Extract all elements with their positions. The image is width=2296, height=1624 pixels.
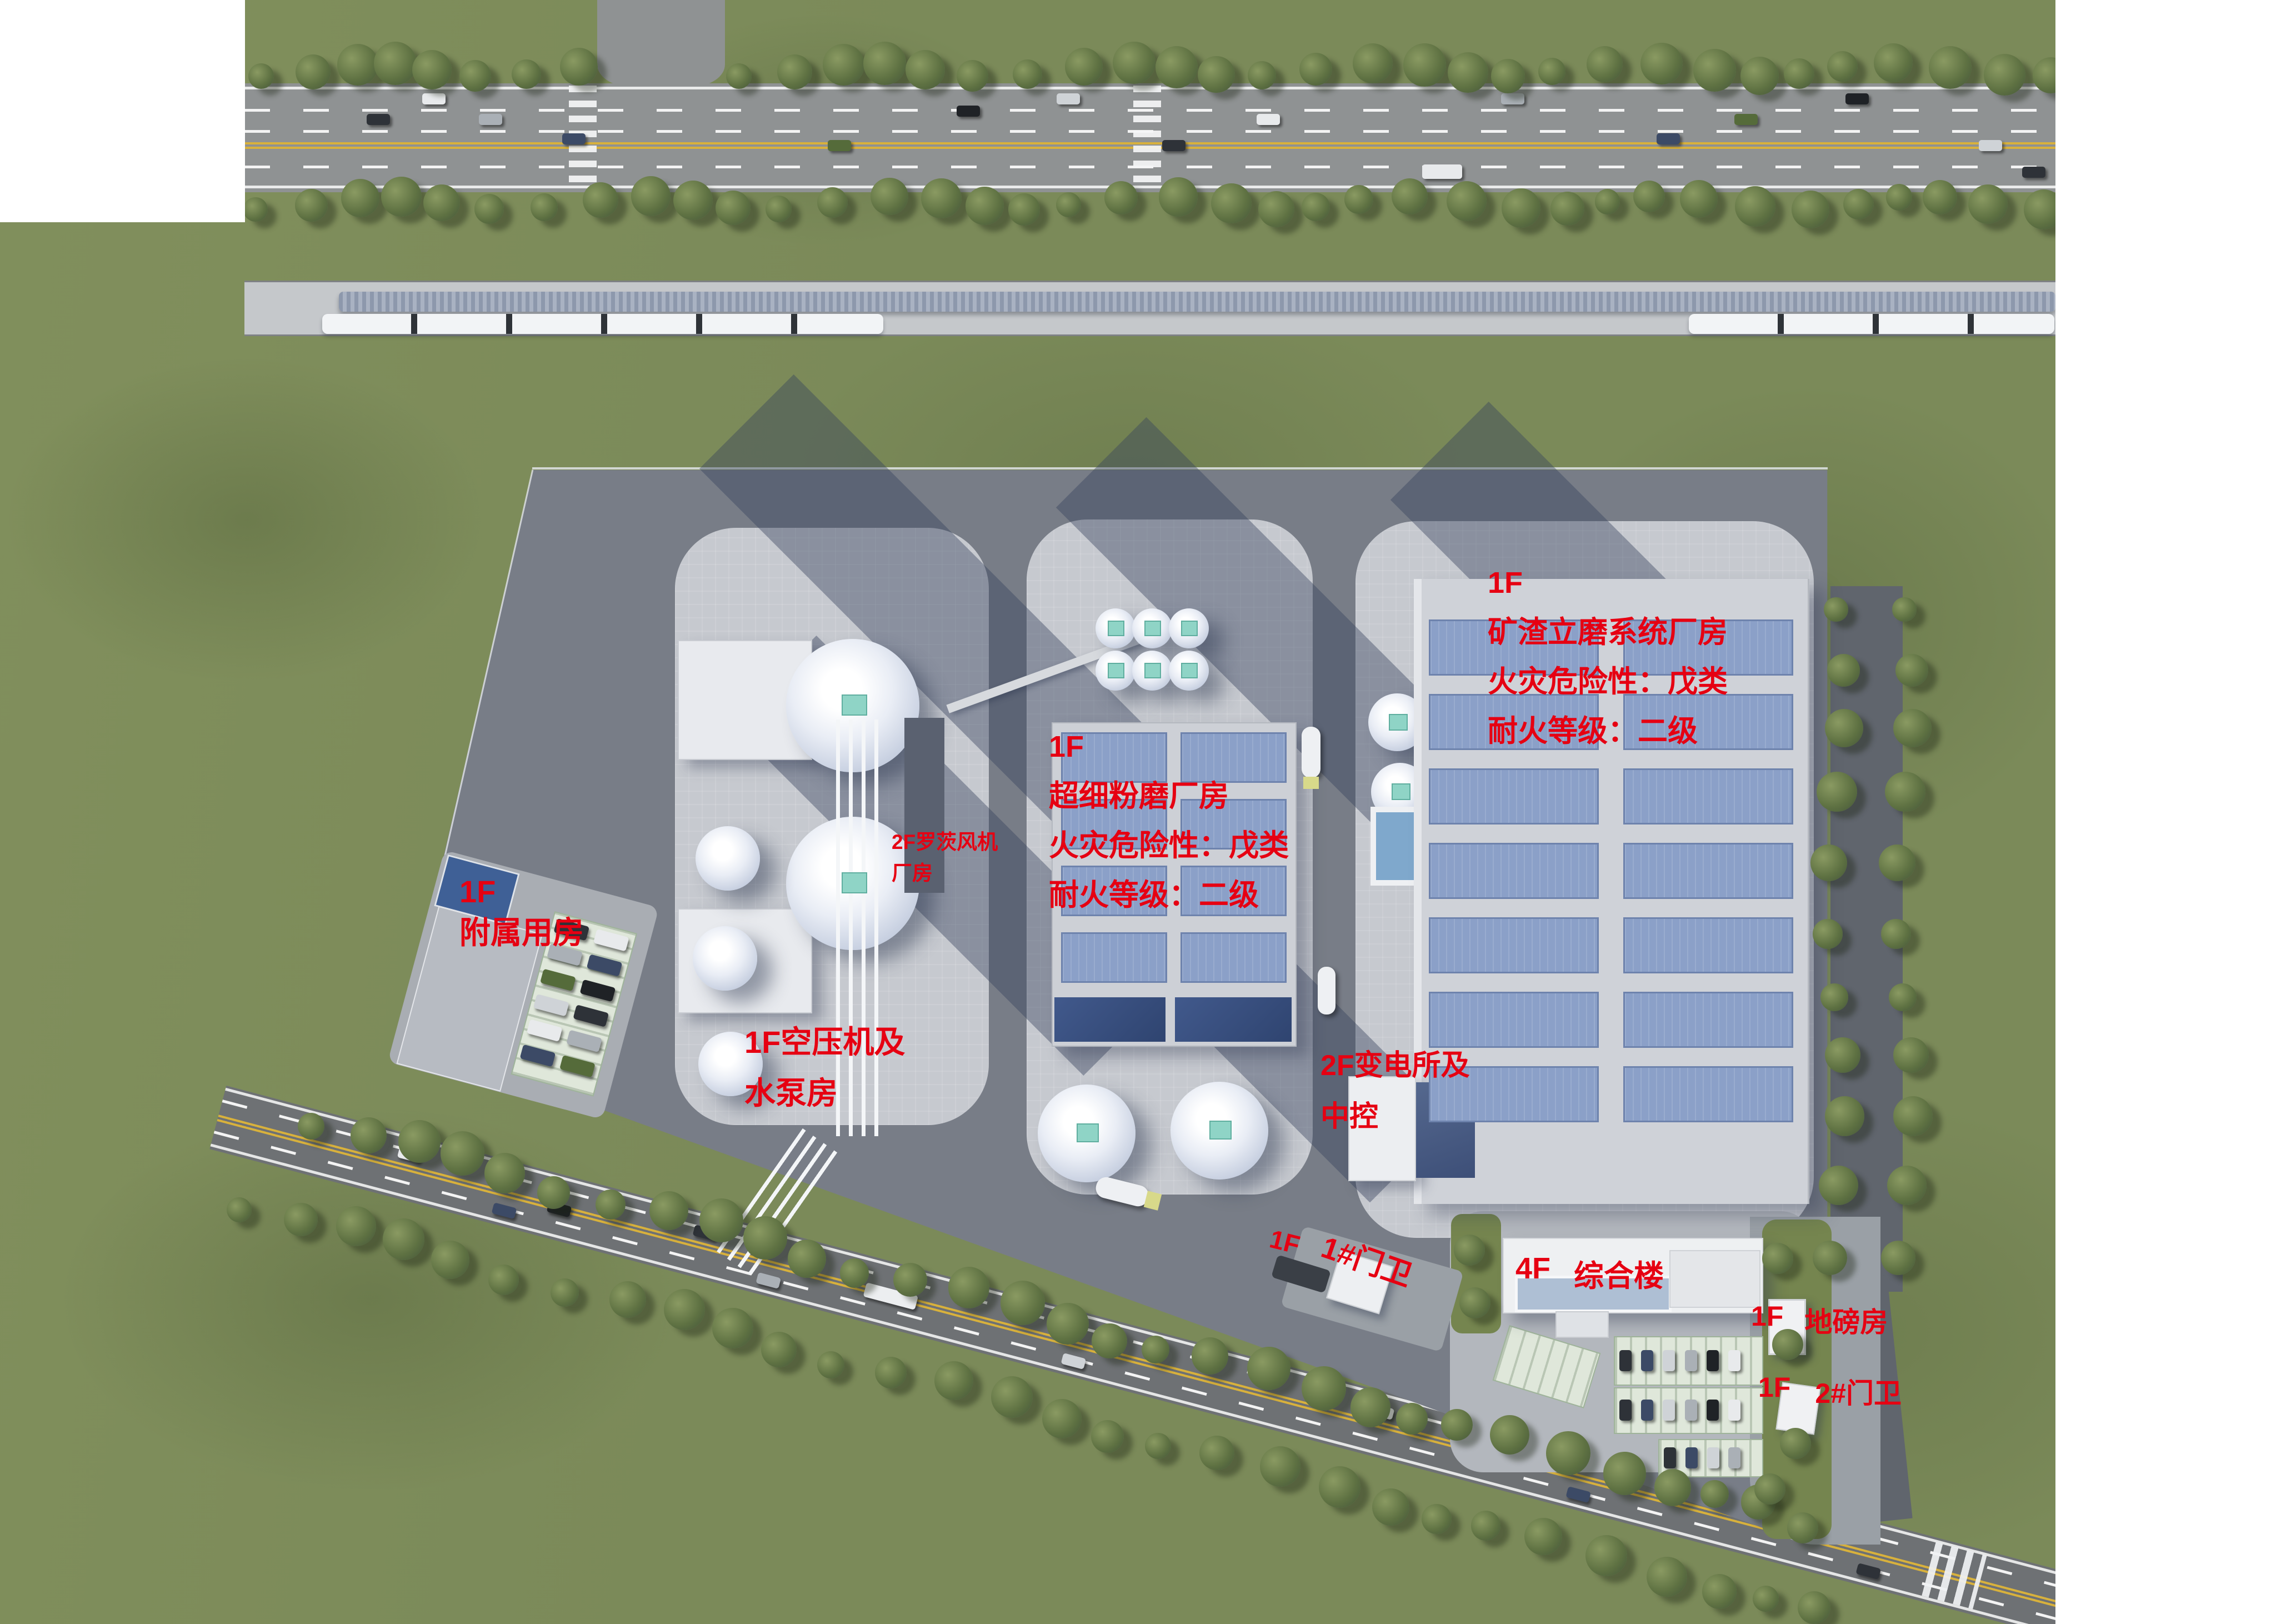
- tree: [1091, 1420, 1124, 1453]
- parked-car: [1707, 1350, 1719, 1371]
- parked-car: [1663, 1350, 1675, 1371]
- label-roots-blower: 2F罗茨风机 厂房: [892, 827, 998, 889]
- tree: [1524, 1518, 1562, 1555]
- tree: [1396, 1403, 1428, 1435]
- tree: [1248, 61, 1276, 89]
- silo-top-equipment: [1108, 663, 1124, 678]
- label-line: 中控: [1320, 1091, 1470, 1142]
- parked-car: [1728, 1400, 1740, 1421]
- tree: [1892, 597, 1917, 622]
- roof-skylight: [1623, 992, 1793, 1048]
- tree: [1538, 58, 1565, 85]
- tree: [1827, 51, 1858, 82]
- tree: [336, 1206, 376, 1246]
- tree: [1065, 48, 1103, 86]
- tree: [1372, 1488, 1409, 1526]
- tree: [716, 191, 750, 225]
- tree: [381, 177, 421, 217]
- tree: [673, 181, 713, 220]
- tree: [1247, 1347, 1290, 1390]
- label-name: 2#门卫: [1815, 1371, 1902, 1411]
- dome-top-equipment: [1209, 1121, 1232, 1140]
- tree: [1471, 1511, 1500, 1540]
- label-name: 综合楼: [1574, 1251, 1664, 1295]
- tree: [1491, 59, 1525, 93]
- tree: [664, 1289, 705, 1330]
- tank-truck: [1318, 967, 1335, 1015]
- tree: [1647, 1557, 1687, 1597]
- tree: [609, 1281, 646, 1318]
- tree: [1825, 1037, 1860, 1073]
- parked-car: [1663, 1400, 1675, 1421]
- tree: [227, 1197, 252, 1222]
- tree: [1595, 189, 1620, 214]
- tree: [777, 54, 812, 89]
- label-ultrafine-mill: 1F 超细粉磨厂房 火灾危险性：戊类 耐火等级：二级: [1049, 722, 1289, 920]
- tree: [1113, 42, 1155, 84]
- tree: [631, 176, 671, 216]
- railway-corridor: [244, 281, 2055, 336]
- car: [2022, 167, 2045, 178]
- label-substation: 2F变电所及 中控: [1320, 1040, 1470, 1142]
- tree: [1680, 180, 1718, 218]
- tree: [1392, 178, 1428, 214]
- tank-top-equipment: [1392, 783, 1410, 800]
- car: [1855, 1563, 1881, 1580]
- tree: [1735, 186, 1775, 226]
- tree: [1042, 1399, 1082, 1438]
- tree: [1874, 43, 1912, 82]
- aerial-photo: 1F 矿渣立磨系统厂房 火灾危险性：戊类 耐火等级：二级 1F 超细粉磨厂房 火…: [0, 0, 2055, 1624]
- parked-car: [1728, 1447, 1740, 1468]
- office-entrance-canopy: [1555, 1311, 1609, 1338]
- tree: [823, 44, 864, 85]
- tree: [817, 187, 848, 218]
- label-line: 1F空压机及: [744, 1017, 905, 1068]
- parked-car: [1685, 1350, 1697, 1371]
- site-plan-rendering: 1F 矿渣立磨系统厂房 火灾危险性：戊类 耐火等级：二级 1F 超细粉磨厂房 火…: [0, 0, 2296, 1624]
- tree: [1825, 1096, 1865, 1136]
- tree: [1441, 1409, 1473, 1441]
- tree: [991, 1376, 1033, 1418]
- parked-car: [1685, 1400, 1697, 1421]
- tree: [1142, 1336, 1169, 1363]
- tree: [1047, 1303, 1089, 1345]
- tree: [474, 194, 504, 223]
- small-tank-dome: [696, 826, 760, 891]
- tree: [788, 1240, 826, 1278]
- label-line: 水泵房: [744, 1068, 905, 1119]
- parked-car: [1619, 1350, 1632, 1371]
- tree: [817, 1351, 844, 1378]
- gable-roof-blue: [1054, 997, 1165, 1042]
- tree: [921, 178, 961, 218]
- car: [1422, 164, 1462, 179]
- tree: [1192, 1337, 1229, 1375]
- tree: [1702, 1574, 1737, 1609]
- car: [492, 1202, 517, 1219]
- tree: [1403, 43, 1446, 86]
- tree: [875, 1357, 907, 1388]
- label-fire-hazard: 火灾危险性：戊类: [1488, 657, 1728, 707]
- tree: [1813, 1241, 1847, 1275]
- tree: [1008, 193, 1040, 225]
- parked-car: [1707, 1400, 1719, 1421]
- tree: [1843, 189, 1874, 219]
- tree: [1260, 1446, 1300, 1487]
- tank-truck: [1302, 727, 1320, 778]
- tree: [337, 44, 378, 85]
- label-name: 矿渣立磨系统厂房: [1488, 608, 1728, 657]
- tree: [1895, 654, 1928, 687]
- tree: [1211, 183, 1251, 223]
- tree: [906, 50, 945, 89]
- car: [367, 114, 390, 125]
- label-floor: 1F: [459, 871, 584, 912]
- tree: [1700, 1480, 1728, 1508]
- label-weighbridge: 1F 地磅房: [1751, 1300, 1888, 1340]
- tree: [1820, 983, 1848, 1011]
- label-office: 4F 综合楼: [1515, 1251, 1664, 1295]
- tree: [871, 178, 908, 216]
- rail-line: [244, 334, 2055, 336]
- tree: [1881, 1241, 1915, 1275]
- car: [422, 93, 446, 104]
- tree: [1968, 184, 2008, 224]
- car: [1979, 140, 2002, 151]
- tree: [1885, 772, 1925, 812]
- north-road: [244, 83, 2055, 192]
- tree: [341, 179, 380, 218]
- tree: [1447, 181, 1487, 221]
- tank-top-equipment: [1389, 714, 1408, 731]
- car: [1162, 140, 1185, 151]
- tree: [398, 1120, 441, 1163]
- silo-top-equipment: [1181, 621, 1198, 636]
- tree: [1587, 46, 1623, 82]
- tree: [560, 48, 598, 86]
- tree: [1155, 46, 1198, 88]
- tree: [1459, 1287, 1490, 1318]
- tree: [1454, 1235, 1485, 1266]
- car: [1845, 93, 1869, 104]
- parked-car: [1728, 1350, 1740, 1371]
- tree: [1092, 1323, 1127, 1358]
- silo-top-equipment: [1144, 621, 1161, 636]
- tree: [1448, 52, 1488, 93]
- label-floor: 1F: [1751, 1300, 1783, 1340]
- roof-skylight: [1061, 932, 1167, 983]
- label-name: 附属用房: [459, 912, 584, 953]
- car: [756, 1272, 781, 1289]
- tree: [1824, 597, 1848, 622]
- tree: [431, 1241, 469, 1279]
- tree: [374, 42, 417, 84]
- tree: [1762, 1243, 1793, 1274]
- tree: [459, 60, 491, 92]
- tree: [712, 1308, 753, 1349]
- tree: [1302, 1366, 1346, 1411]
- silo-top-equipment: [842, 872, 867, 893]
- car: [1061, 1353, 1087, 1370]
- car: [1257, 114, 1280, 125]
- silo-top-equipment: [842, 694, 867, 716]
- tree: [1159, 177, 1198, 216]
- silo-top-equipment: [1144, 663, 1161, 678]
- tree: [1198, 56, 1234, 93]
- tree: [298, 1113, 324, 1140]
- tree: [1013, 59, 1042, 89]
- label-auxiliary: 1F 附属用房: [459, 871, 584, 953]
- tree: [1299, 53, 1332, 86]
- tree: [243, 197, 268, 222]
- tree: [1640, 43, 1682, 84]
- parked-car: [1619, 1400, 1632, 1421]
- car: [562, 133, 586, 144]
- tree: [1923, 180, 1957, 214]
- tree: [766, 196, 792, 222]
- tree: [1889, 983, 1917, 1011]
- tree: [531, 193, 558, 221]
- tree: [1893, 1096, 1933, 1136]
- tree: [761, 1332, 797, 1367]
- label-floor: 1F: [1488, 558, 1728, 608]
- tree: [1550, 192, 1584, 226]
- tree: [966, 187, 1004, 225]
- tank-truck-cab: [1303, 777, 1319, 789]
- tree: [934, 1361, 973, 1400]
- car: [1565, 1486, 1591, 1503]
- car: [1501, 93, 1524, 104]
- car: [1657, 133, 1680, 144]
- tree: [743, 1216, 787, 1260]
- tree: [1792, 191, 1829, 228]
- tree: [1984, 54, 2025, 96]
- parked-car: [1664, 1447, 1676, 1468]
- crosswalk: [1133, 86, 1161, 190]
- car: [1057, 93, 1080, 104]
- label-name: 超细粉磨厂房: [1049, 772, 1289, 821]
- tree: [1585, 1535, 1627, 1577]
- tree: [863, 42, 906, 84]
- right-margin: [2055, 0, 2296, 1624]
- tree: [1001, 1281, 1045, 1325]
- label-fire-rating: 耐火等级：二级: [1488, 707, 1728, 756]
- tree: [1344, 185, 1373, 213]
- label-floor: 4F: [1515, 1251, 1550, 1295]
- tree: [1740, 57, 1779, 96]
- roof-skylight: [1623, 843, 1793, 899]
- tree: [1886, 184, 1912, 210]
- roof-skylight: [1623, 768, 1793, 825]
- tree: [1422, 1504, 1451, 1533]
- branch-road: [597, 0, 725, 87]
- tree: [1693, 49, 1736, 92]
- tree: [1780, 1428, 1811, 1459]
- roof-skylight: [1429, 843, 1599, 899]
- rail-line: [244, 281, 2055, 282]
- tree: [583, 182, 618, 218]
- roof-skylight: [1429, 992, 1599, 1048]
- tree: [1199, 1436, 1234, 1471]
- parked-car: [1707, 1447, 1719, 1468]
- tree: [412, 50, 452, 89]
- tree: [1633, 181, 1665, 212]
- tree: [699, 1198, 743, 1242]
- label-air-compressor: 1F空压机及 水泵房: [744, 1017, 905, 1119]
- label-fire-hazard: 火灾危险性：戊类: [1049, 821, 1289, 871]
- passenger-train: [1689, 314, 2054, 334]
- roof-skylight: [1180, 932, 1287, 983]
- car: [957, 106, 980, 117]
- tree: [1825, 709, 1864, 748]
- tree: [1104, 181, 1138, 215]
- tree: [1502, 188, 1540, 227]
- parked-car: [1685, 1447, 1698, 1468]
- tree: [1490, 1415, 1530, 1455]
- office-wing: [1669, 1250, 1760, 1308]
- tree: [296, 54, 331, 89]
- parked-car: [1641, 1400, 1653, 1421]
- tree: [1603, 1452, 1647, 1495]
- freight-train: [339, 292, 2055, 312]
- small-tank-dome: [693, 926, 757, 991]
- roof-skylight: [1429, 917, 1599, 973]
- tree: [1258, 191, 1294, 227]
- label-name: 地磅房: [1804, 1300, 1888, 1340]
- tree: [1817, 772, 1857, 812]
- tree: [441, 1131, 485, 1176]
- dome-top-equipment: [1077, 1123, 1099, 1142]
- tree: [1145, 1433, 1171, 1459]
- tree: [649, 1191, 688, 1230]
- tree: [1929, 46, 1972, 89]
- label-gate2: 1F 2#门卫: [1758, 1371, 1902, 1411]
- parked-car: [1641, 1350, 1653, 1371]
- roof-skylight: [1623, 1066, 1793, 1122]
- label-line: 厂房: [892, 858, 998, 889]
- silo-top-equipment: [1108, 621, 1124, 636]
- car: [479, 114, 502, 125]
- tree: [1893, 1037, 1929, 1073]
- tree: [484, 1153, 525, 1193]
- tree: [840, 1258, 869, 1287]
- tree: [1813, 919, 1842, 948]
- label-line: 2F罗茨风机: [892, 827, 998, 858]
- tree: [1350, 1387, 1390, 1427]
- car: [828, 140, 851, 151]
- tree: [1798, 1591, 1830, 1624]
- car: [1734, 114, 1758, 125]
- tree: [1353, 43, 1393, 83]
- tree: [1787, 1512, 1818, 1543]
- tree: [1546, 1431, 1590, 1476]
- tree: [551, 1278, 579, 1307]
- tree: [1887, 1166, 1927, 1205]
- tree: [295, 189, 328, 222]
- roof-skylight: [1429, 768, 1599, 825]
- roof-skylight: [1623, 917, 1793, 973]
- tree: [1754, 1473, 1785, 1505]
- tree: [1893, 709, 1932, 748]
- label-floor: 1F: [1049, 722, 1289, 772]
- tree: [1819, 1166, 1858, 1205]
- label-floor: 1F: [1758, 1371, 1790, 1411]
- tree: [383, 1218, 424, 1260]
- title-background: [0, 0, 245, 222]
- tree: [1881, 919, 1910, 948]
- tree: [948, 1267, 990, 1308]
- passenger-train: [322, 314, 883, 334]
- label-slag-mill: 1F 矿渣立磨系统厂房 火灾危险性：戊类 耐火等级：二级: [1488, 558, 1728, 756]
- tree: [1319, 1466, 1360, 1508]
- gable-roof-blue: [1175, 997, 1292, 1042]
- tree: [893, 1263, 927, 1297]
- label-fire-rating: 耐火等级：二级: [1049, 871, 1289, 920]
- tree: [512, 59, 541, 89]
- tree: [957, 60, 988, 92]
- silo-top-equipment: [1181, 663, 1198, 678]
- tree: [1827, 654, 1860, 687]
- tree: [1654, 1469, 1692, 1506]
- label-line: 2F变电所及: [1320, 1040, 1470, 1091]
